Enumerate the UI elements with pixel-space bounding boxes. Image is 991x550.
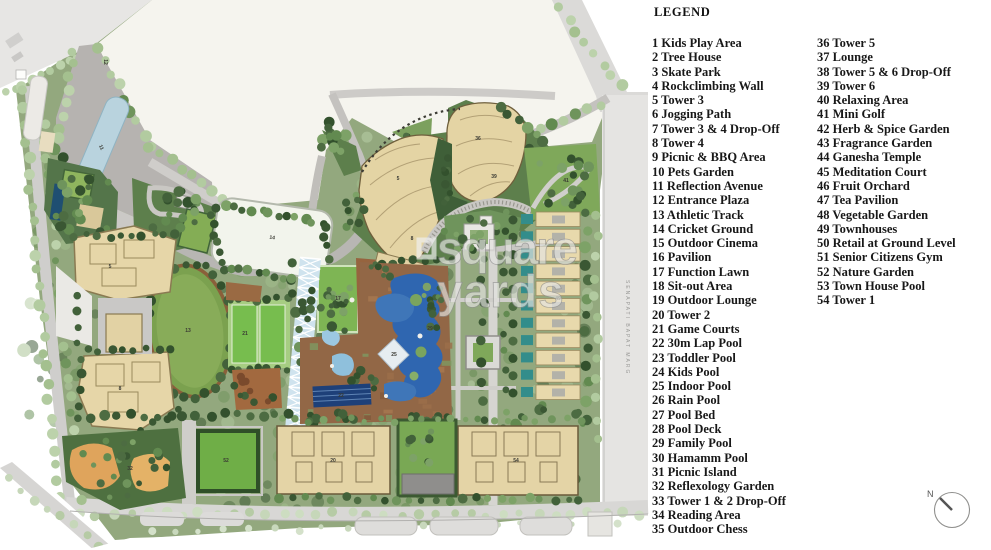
svg-text:5: 5	[397, 176, 400, 182]
svg-text:8: 8	[119, 386, 122, 392]
svg-text:12: 12	[102, 59, 108, 65]
svg-text:20: 20	[330, 458, 336, 464]
svg-text:yards: yards	[437, 265, 565, 317]
svg-text:32: 32	[127, 466, 133, 472]
svg-text:54: 54	[513, 458, 519, 464]
svg-text:21: 21	[242, 331, 248, 337]
svg-text:41: 41	[563, 178, 569, 184]
svg-text:SENAPATI BAPAT MARG: SENAPATI BAPAT MARG	[624, 280, 630, 375]
svg-text:36: 36	[475, 136, 481, 142]
svg-text:22: 22	[338, 393, 344, 399]
svg-text:14: 14	[269, 235, 276, 242]
svg-text:52: 52	[223, 458, 229, 464]
svg-text:39: 39	[491, 174, 497, 180]
svg-text:29: 29	[427, 326, 433, 332]
svg-text:17: 17	[335, 296, 341, 302]
svg-text:8: 8	[411, 236, 414, 242]
svg-text:5: 5	[109, 264, 112, 270]
svg-text:25: 25	[391, 352, 397, 358]
svg-text:13: 13	[185, 328, 191, 334]
svg-text:N: N	[927, 489, 934, 499]
